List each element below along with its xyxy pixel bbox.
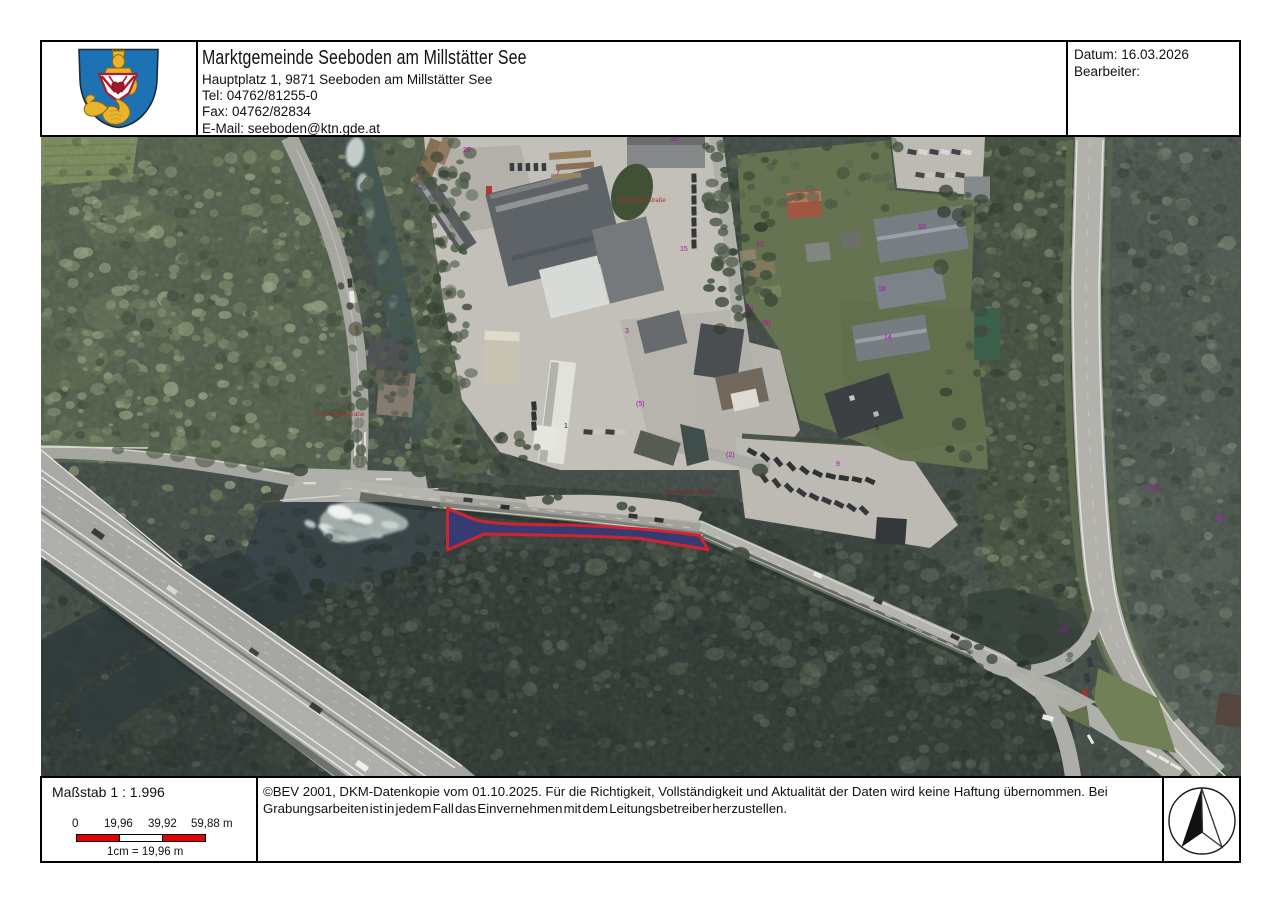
- svg-text:(5): (5): [745, 306, 754, 313]
- svg-text:(9): (9): [1216, 515, 1225, 522]
- svg-text:(2): (2): [1060, 627, 1069, 634]
- svg-text:5: 5: [875, 425, 879, 432]
- svg-text:16: 16: [670, 137, 678, 143]
- svg-text:7: 7: [556, 170, 560, 177]
- svg-text:1: 1: [564, 423, 568, 430]
- svg-text:15: 15: [680, 246, 688, 253]
- svg-text:Seebacher Straße: Seebacher Straße: [617, 198, 666, 204]
- svg-text:3: 3: [625, 328, 629, 335]
- svg-text:42: 42: [756, 241, 764, 248]
- svg-text:18: 18: [878, 286, 886, 293]
- svg-text:29: 29: [463, 147, 471, 154]
- svg-text:(5): (5): [636, 401, 645, 408]
- svg-text:10: 10: [918, 224, 926, 231]
- svg-text:Seebacher Straße: Seebacher Straße: [667, 490, 716, 496]
- svg-text:9: 9: [836, 461, 840, 468]
- svg-text:(2): (2): [726, 452, 735, 459]
- svg-text:(16): (16): [1146, 486, 1158, 493]
- svg-text:Katschbergstraße: Katschbergstraße: [317, 412, 365, 418]
- svg-text:14: 14: [884, 334, 892, 341]
- svg-text:(6): (6): [762, 320, 771, 327]
